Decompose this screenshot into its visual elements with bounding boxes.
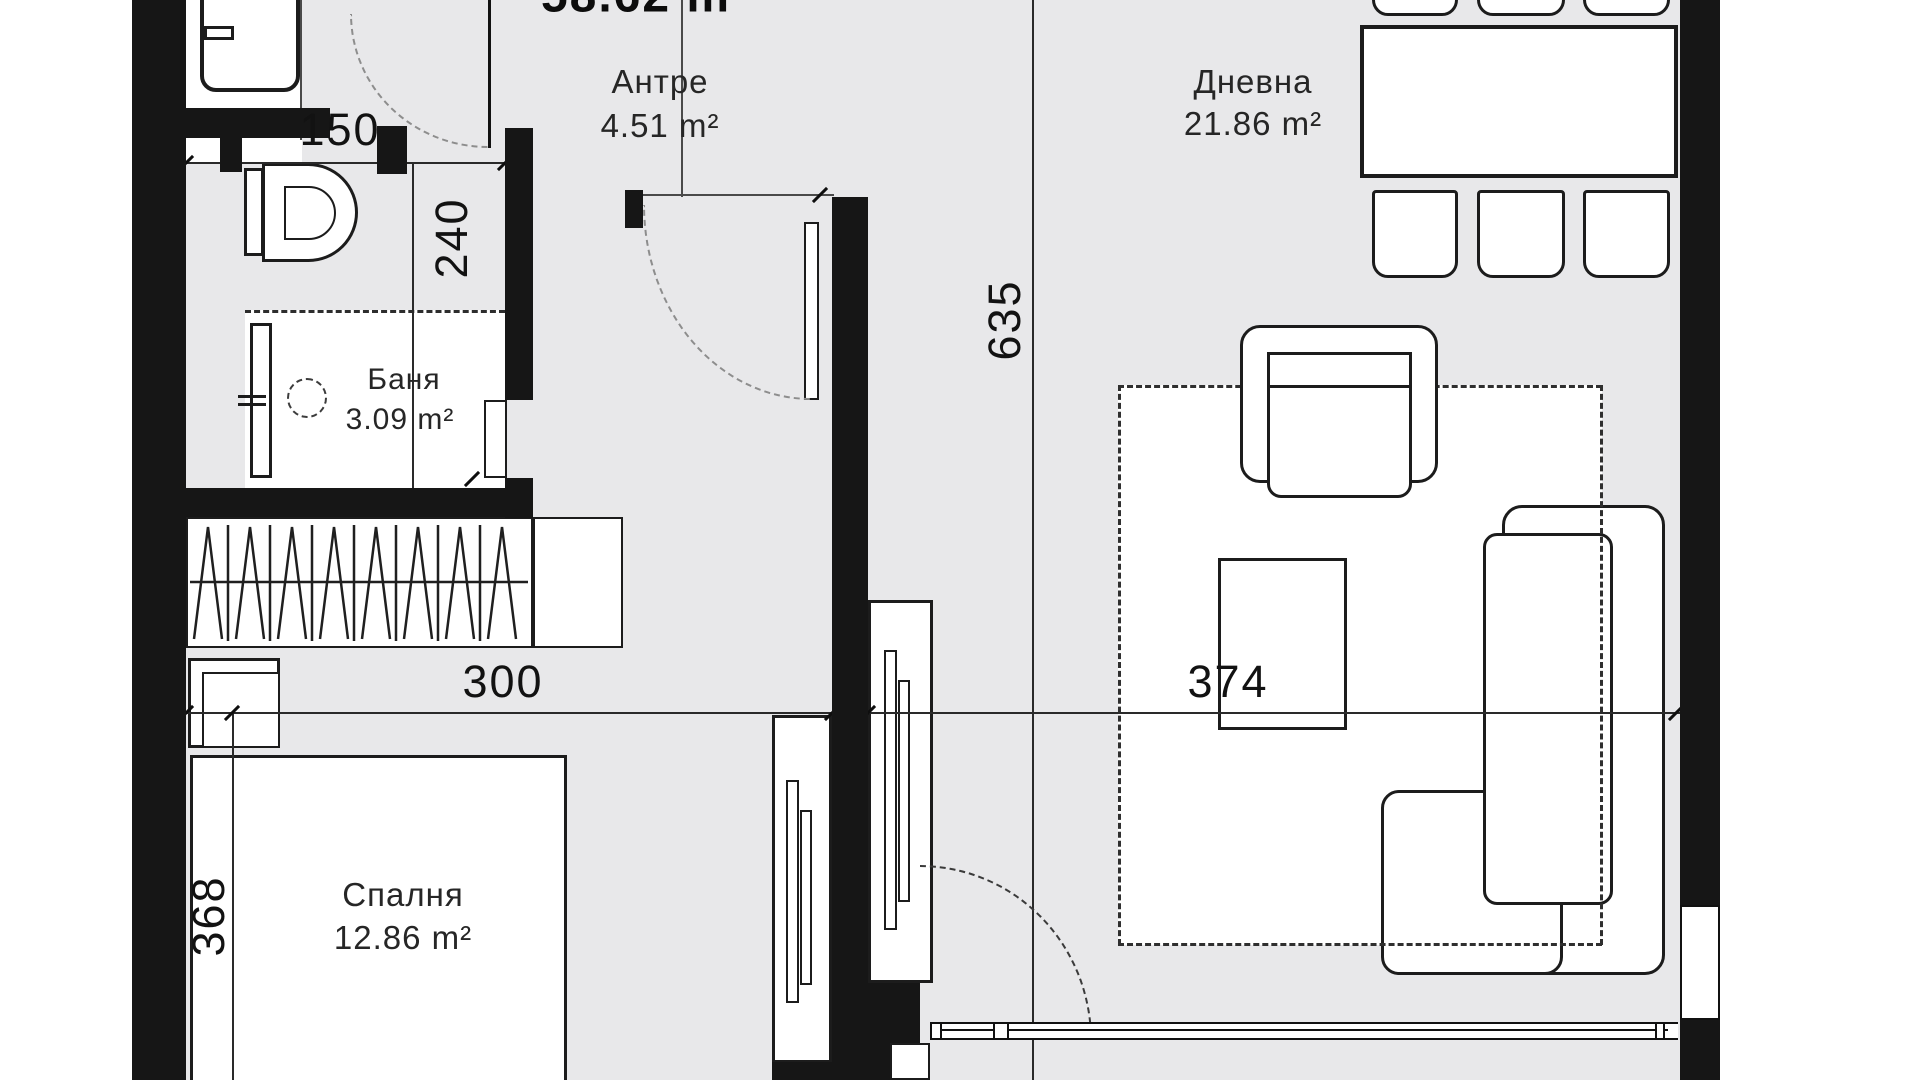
- sliding-panel: [800, 810, 812, 985]
- bathroom-door-leaf: [484, 400, 507, 478]
- dining-chair: [1583, 190, 1670, 278]
- window-mullion: [993, 1022, 1009, 1040]
- mid-wall-low: [832, 1045, 890, 1080]
- dim-label-635: 635: [979, 279, 1031, 360]
- exterior-wall-right-corner: [1680, 1020, 1720, 1080]
- sliding-panel: [786, 780, 799, 1003]
- closet-shelf: [533, 517, 623, 648]
- room-area-dnevna: 21.86 m²: [1184, 105, 1322, 143]
- rug-edge-bottom: [1118, 943, 1602, 946]
- window-post: [1655, 1022, 1665, 1040]
- toilet-tank: [244, 168, 264, 256]
- dining-table: [1360, 25, 1678, 178]
- toilet-bowl-inner: [284, 186, 336, 240]
- wardrobe-base-wall: [772, 1062, 834, 1080]
- shower-door-handle: [238, 395, 266, 398]
- bath-door-post: [377, 126, 407, 174]
- washbasin-tap: [204, 26, 234, 40]
- floor-plan: 58.62 m² Антре 4.51 m² Дневна 21.86 m² Б…: [0, 0, 1920, 1080]
- dining-chair: [1583, 0, 1670, 16]
- bed: [190, 755, 567, 1080]
- dim-label-240: 240: [426, 197, 478, 278]
- sliding-panel: [884, 650, 897, 930]
- mid-wall-chunk: [832, 983, 920, 1045]
- sofa-seat: [1483, 533, 1613, 905]
- wardrobe-closet: [186, 517, 533, 648]
- window-glass-line: [940, 1029, 1668, 1031]
- dining-chair: [1477, 190, 1565, 278]
- window-right: [1680, 905, 1720, 1020]
- dim-label-300: 300: [462, 656, 543, 708]
- room-area-banya: 3.09 m²: [346, 403, 455, 437]
- room-label-spalnya: Спалня: [342, 876, 463, 914]
- hall-door-post: [625, 190, 643, 228]
- room-label-dnevna: Дневна: [1193, 63, 1312, 101]
- washbasin-fixture: [200, 0, 300, 92]
- shower-door-handle: [238, 403, 266, 406]
- dim-line-150: [150, 162, 512, 164]
- bath-wall-bottom: [145, 488, 533, 517]
- dim-label-150: 150: [299, 104, 380, 156]
- room-area-antre: 4.51 m²: [601, 107, 720, 145]
- exterior-wall-right: [1680, 0, 1720, 905]
- dim-label-374: 374: [1187, 656, 1268, 708]
- dining-chair: [1372, 0, 1458, 16]
- nightstand-inner: [202, 672, 280, 748]
- armchair-seat-line: [1269, 385, 1410, 388]
- room-label-banya: Баня: [367, 363, 440, 397]
- drain-circle: [287, 378, 327, 418]
- entrance-door-leaf: [488, 0, 491, 148]
- balcony-door-leaf: [890, 1043, 930, 1080]
- shower-door: [250, 323, 272, 478]
- dim-label-368: 368: [183, 875, 235, 956]
- dining-chair: [1372, 190, 1458, 278]
- dim-line-horizontal: [148, 712, 1680, 714]
- mid-wall: [832, 197, 868, 983]
- room-label-antre: Антре: [611, 63, 708, 101]
- bath-wall-stub: [220, 108, 242, 172]
- window-band: [930, 1022, 1678, 1040]
- hanging-clothes-icon: [188, 519, 530, 645]
- dim-line-240: [412, 162, 414, 488]
- room-area-spalnya: 12.86 m²: [334, 919, 472, 957]
- dining-chair: [1477, 0, 1565, 16]
- bath-wall-right-upper: [505, 128, 533, 400]
- total-area-label: 58.62 m²: [541, 0, 749, 24]
- window-post: [930, 1022, 942, 1040]
- rug-edge-right: [1600, 385, 1603, 945]
- armchair-seat: [1267, 352, 1412, 498]
- shower-area: [245, 310, 505, 488]
- hall-boundary-line: [640, 194, 834, 196]
- exterior-wall-left: [132, 0, 186, 1080]
